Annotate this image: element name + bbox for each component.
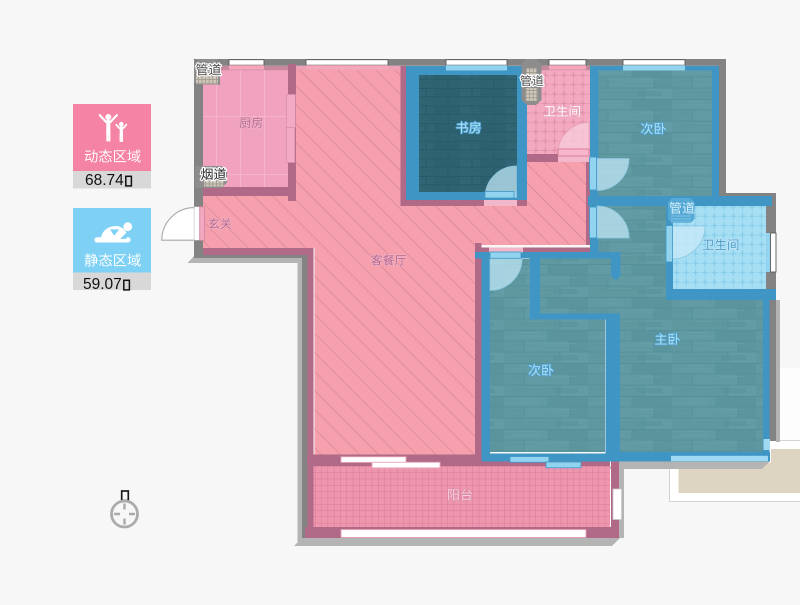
svg-text:68.74: 68.74 (85, 172, 124, 189)
svg-text:59.07: 59.07 (83, 276, 122, 293)
